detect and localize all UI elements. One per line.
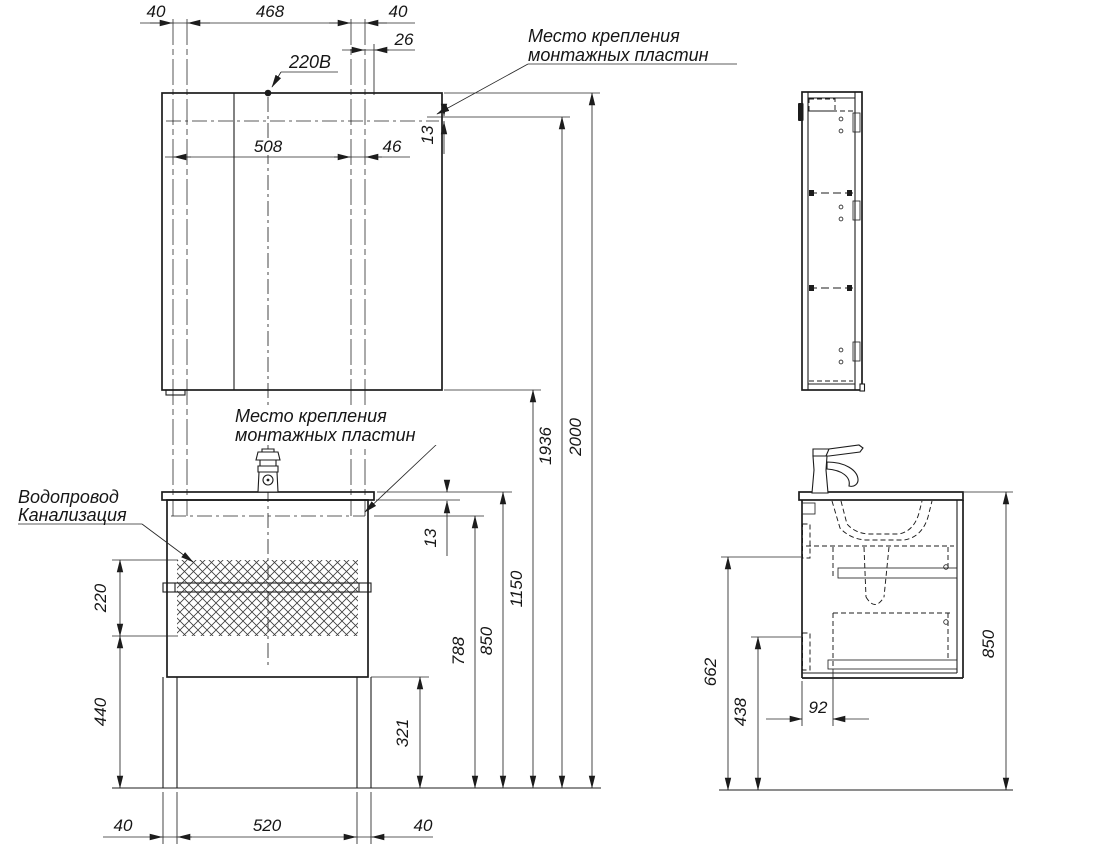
mirror-cabinet-front <box>162 90 442 395</box>
dim-mount-span: 508 <box>254 137 283 156</box>
plumbing-zone-hatch <box>177 560 358 636</box>
dim-hatch-to-floor: 440 <box>91 697 110 726</box>
slide-rail-lower <box>828 660 957 669</box>
dimensions-side <box>719 492 1013 790</box>
dim-mirror-mount-height: 1936 <box>536 427 555 465</box>
dim-top-span: 468 <box>256 2 285 21</box>
note-mounting-plates-mid-line2: монтажных пластин <box>235 425 416 445</box>
dim-side-front-inset: 92 <box>809 698 828 717</box>
side-view-vanity <box>719 445 1013 790</box>
dim-side-rail-lower: 438 <box>731 697 750 726</box>
dim-counter-height: 850 <box>477 626 496 655</box>
note-mounting-plates-top-line1: Место крепления <box>528 26 680 46</box>
wall-bracket <box>798 103 804 121</box>
dim-side-counter-height: 850 <box>979 629 998 658</box>
sink-bowl-hidden <box>832 501 932 540</box>
label-power-220v: 220В <box>288 52 331 72</box>
shelf-line-upper <box>809 190 853 196</box>
dim-top-left: 40 <box>147 2 166 21</box>
dim-base-left: 40 <box>114 816 133 835</box>
dim-base-span: 520 <box>253 816 282 835</box>
faucet-side <box>812 445 863 493</box>
dim-plate-gap-mid: 13 <box>421 528 440 547</box>
faucet-front <box>256 449 280 492</box>
dim-hatch-height: 220 <box>91 583 110 613</box>
note-mounting-plates-top-line2: монтажных пластин <box>528 45 709 65</box>
vanity-front <box>162 449 374 788</box>
text-labels: 40 468 40 26 220В 508 46 Место крепления… <box>18 2 998 835</box>
vanity-legs <box>163 677 371 788</box>
installation-drawing: 40 468 40 26 220В 508 46 Место крепления… <box>0 0 1094 854</box>
dim-mount-side: 46 <box>383 137 402 156</box>
dim-plinth-height: 321 <box>393 719 412 747</box>
dim-plate-offset: 26 <box>394 30 414 49</box>
dim-mirror-bottom-height: 1150 <box>507 570 526 607</box>
drawer-structure-hidden <box>802 503 957 670</box>
dim-plate-gap-top: 13 <box>418 125 437 144</box>
hinge-marks <box>839 113 860 364</box>
slide-rail-upper <box>838 568 957 578</box>
label-sewerage: Канализация <box>18 505 127 525</box>
shelf-line-lower <box>809 285 853 291</box>
annotation-leaders <box>18 64 737 562</box>
dim-top-right: 40 <box>389 2 408 21</box>
note-mounting-plates-mid-line1: Место крепления <box>235 406 387 426</box>
dim-base-right: 40 <box>414 816 433 835</box>
label-water-supply: Водопровод <box>18 487 119 507</box>
dim-total-height: 2000 <box>566 418 585 457</box>
power-outlet-point <box>265 90 272 97</box>
side-view-mirror-cabinet <box>798 92 865 391</box>
dim-mount-height: 788 <box>449 636 468 665</box>
drain-hidden <box>864 547 889 605</box>
drawing-canvas: 40 468 40 26 220В 508 46 Место крепления… <box>0 0 1094 854</box>
dim-side-rail-upper: 662 <box>701 657 720 686</box>
door-knob <box>860 384 865 391</box>
